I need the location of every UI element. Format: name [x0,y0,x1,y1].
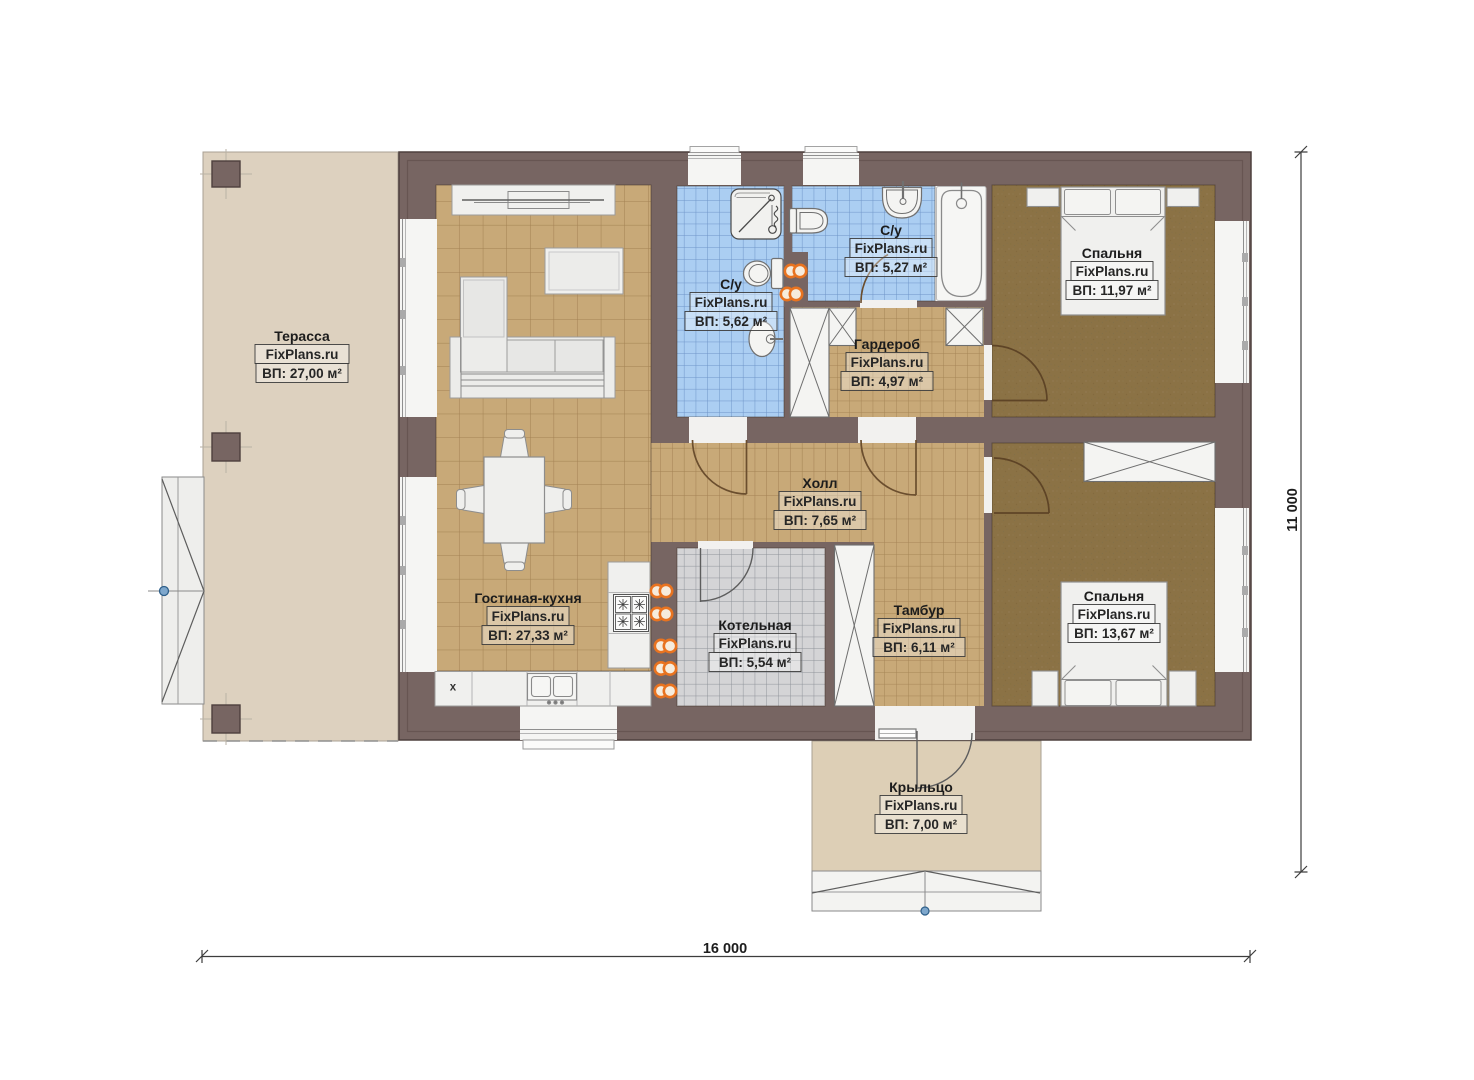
svg-text:FixPlans.ru: FixPlans.ru [784,494,857,509]
svg-text:FixPlans.ru: FixPlans.ru [1078,607,1151,622]
svg-text:ВП: 27,33 м²: ВП: 27,33 м² [488,628,568,643]
svg-text:Спальня: Спальня [1084,588,1144,604]
svg-text:x: x [450,682,457,694]
svg-text:FixPlans.ru: FixPlans.ru [719,636,792,651]
svg-text:ВП: 6,11 м²: ВП: 6,11 м² [883,640,955,655]
svg-text:FixPlans.ru: FixPlans.ru [492,609,565,624]
svg-text:16 000: 16 000 [703,941,747,957]
svg-text:Холл: Холл [802,475,837,491]
svg-text:Тамбур: Тамбур [894,602,945,618]
svg-text:FixPlans.ru: FixPlans.ru [885,798,958,813]
svg-text:Гостиная-кухня: Гостиная-кухня [474,590,581,606]
svg-text:Котельная: Котельная [718,617,791,633]
svg-text:С/у: С/у [880,222,902,238]
svg-text:Крыльцо: Крыльцо [889,779,953,795]
svg-text:FixPlans.ru: FixPlans.ru [1076,264,1149,279]
svg-text:FixPlans.ru: FixPlans.ru [883,621,956,636]
svg-text:FixPlans.ru: FixPlans.ru [851,355,924,370]
svg-text:FixPlans.ru: FixPlans.ru [855,241,928,256]
svg-text:ВП: 13,67 м²: ВП: 13,67 м² [1074,626,1154,641]
svg-text:С/у: С/у [720,276,742,292]
svg-text:Гардероб: Гардероб [854,336,921,352]
svg-text:11 000: 11 000 [1285,488,1301,532]
svg-text:ВП: 5,54 м²: ВП: 5,54 м² [719,655,792,670]
svg-text:ВП: 7,65 м²: ВП: 7,65 м² [784,513,857,528]
svg-text:ВП: 5,62 м²: ВП: 5,62 м² [695,314,768,329]
svg-text:Терасса: Терасса [274,328,330,344]
svg-text:FixPlans.ru: FixPlans.ru [695,295,768,310]
svg-text:FixPlans.ru: FixPlans.ru [266,347,339,362]
svg-text:ВП: 11,97 м²: ВП: 11,97 м² [1073,283,1152,298]
svg-text:ВП: 7,00 м²: ВП: 7,00 м² [885,817,958,832]
svg-text:ВП: 4,97 м²: ВП: 4,97 м² [851,374,924,389]
svg-text:ВП: 5,27 м²: ВП: 5,27 м² [855,260,928,275]
svg-text:ВП: 27,00 м²: ВП: 27,00 м² [262,366,342,381]
svg-text:Спальня: Спальня [1082,245,1142,261]
